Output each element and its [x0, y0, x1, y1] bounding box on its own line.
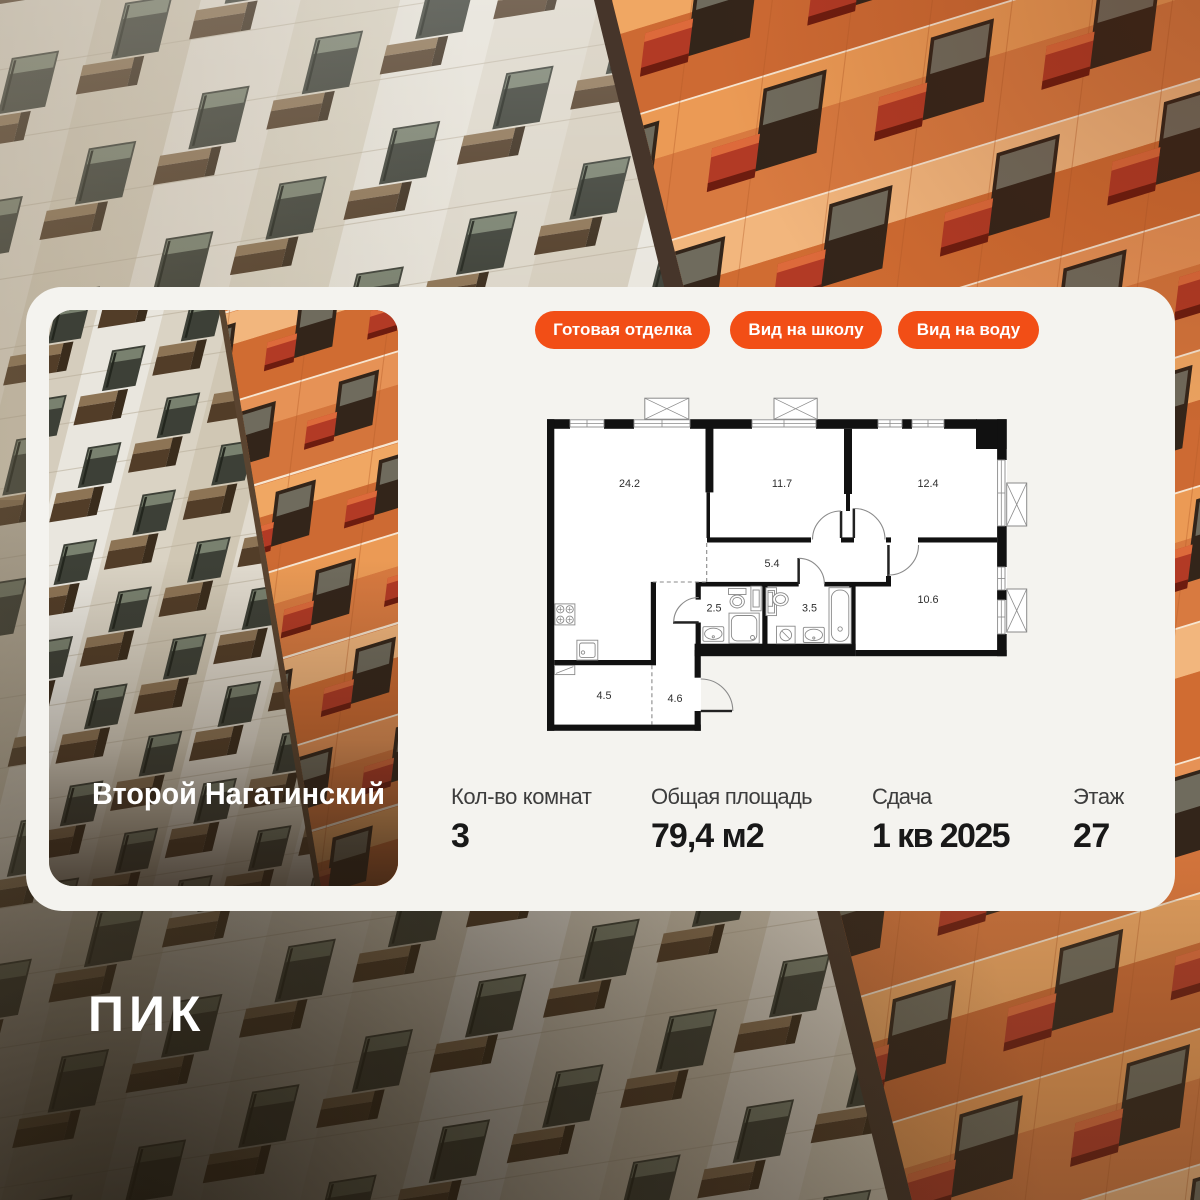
svg-text:4.5: 4.5: [596, 690, 611, 702]
svg-text:24.2: 24.2: [619, 478, 640, 490]
svg-text:12.4: 12.4: [917, 478, 938, 490]
svg-text:5.4: 5.4: [764, 558, 779, 570]
svg-text:2.5: 2.5: [706, 603, 721, 615]
svg-text:3.5: 3.5: [802, 603, 817, 615]
svg-text:4.6: 4.6: [667, 693, 682, 705]
svg-text:Второй Нагатинский: Второй Нагатинский: [92, 776, 385, 811]
svg-text:10.6: 10.6: [917, 594, 938, 606]
svg-text:11.7: 11.7: [772, 478, 792, 490]
